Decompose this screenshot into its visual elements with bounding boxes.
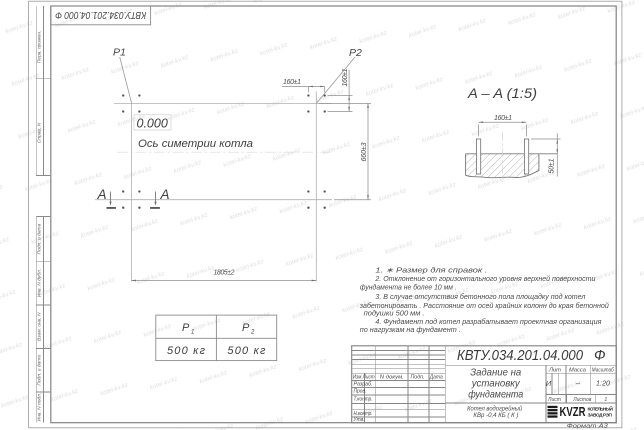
svg-text:P1: P1 xyxy=(113,47,126,59)
svg-text:Лист: Лист xyxy=(547,397,562,403)
svg-text:Изм.Лист: Изм.Лист xyxy=(353,375,375,381)
svg-text:фундамента не более 10 мм .: фундамента не более 10 мм . xyxy=(360,282,457,291)
svg-text:KVZR: KVZR xyxy=(560,405,586,419)
svg-text:Взам. инв. N: Взам. инв. N xyxy=(36,312,42,341)
svg-text:1: 1 xyxy=(604,397,607,403)
svg-text:по нагрузкам на фундамент .: по нагрузкам на фундамент . xyxy=(360,325,461,334)
svg-text:500 кг: 500 кг xyxy=(167,345,206,357)
svg-text:A: A xyxy=(97,187,107,202)
svg-text:Пров.: Пров. xyxy=(354,389,367,395)
svg-text:Масса: Масса xyxy=(569,368,586,374)
svg-text:фундамента: фундамента xyxy=(468,389,523,401)
svg-text:Инв. N дубл.: Инв. N дубл. xyxy=(36,269,42,297)
svg-text:Формат А3: Формат А3 xyxy=(567,423,609,429)
svg-text:Дата: Дата xyxy=(429,375,443,381)
svg-text:50±1: 50±1 xyxy=(549,158,556,173)
svg-text:Инв. N подл.: Инв. N подл. xyxy=(36,393,42,422)
svg-text:2: 2 xyxy=(250,330,255,336)
svg-text:1: 1 xyxy=(191,330,194,336)
svg-text:Лит: Лит xyxy=(548,368,562,374)
svg-text:P: P xyxy=(242,322,250,334)
svg-text:160±1: 160±1 xyxy=(494,115,512,122)
svg-text:P2: P2 xyxy=(349,47,362,59)
svg-text:–: – xyxy=(575,378,581,387)
svg-text:И: И xyxy=(546,379,552,388)
svg-text:КВТУ.034.201.04.000 Ф: КВТУ.034.201.04.000 Ф xyxy=(55,9,146,20)
svg-text:660±3: 660±3 xyxy=(361,142,368,161)
svg-text:Подп.: Подп. xyxy=(411,375,425,381)
svg-text:Утв.: Утв. xyxy=(353,417,365,423)
svg-text:Задание на: Задание на xyxy=(470,366,521,378)
svg-text:N докум.: N докум. xyxy=(380,375,404,381)
svg-text:Перв. примен.: Перв. примен. xyxy=(36,31,42,64)
svg-text:A – A (1:5): A – A (1:5) xyxy=(467,86,537,101)
svg-text:КВТУ.034.201.04.000: КВТУ.034.201.04.000 xyxy=(457,348,583,364)
svg-text:1. ∗ Размер для справок .: 1. ∗ Размер для справок . xyxy=(375,265,487,274)
svg-text:1:20: 1:20 xyxy=(596,379,611,388)
svg-text:A: A xyxy=(160,187,170,202)
svg-text:Справ. N: Справ. N xyxy=(36,122,42,143)
svg-text:160±1: 160±1 xyxy=(283,79,301,86)
svg-text:500 кг: 500 кг xyxy=(227,345,266,357)
svg-text:подушки 500 мм .: подушки 500 мм . xyxy=(364,309,425,318)
svg-text:Подп. и дата: Подп. и дата xyxy=(36,223,42,254)
svg-text:160±1: 160±1 xyxy=(342,68,349,86)
svg-text:Листов: Листов xyxy=(572,397,591,403)
svg-text:1805±2: 1805±2 xyxy=(214,269,235,276)
svg-text:КВр -0,4 КБ ( К ): КВр -0,4 КБ ( К ) xyxy=(473,412,518,419)
svg-text:Т.контр.: Т.контр. xyxy=(354,396,373,402)
svg-text:Масштаб: Масштаб xyxy=(592,368,615,374)
svg-text:ЗАВОД РЭП: ЗАВОД РЭП xyxy=(588,412,613,418)
svg-text:Ф: Ф xyxy=(594,348,606,364)
svg-text:0.000: 0.000 xyxy=(137,117,168,131)
svg-text:Н.контр.: Н.контр. xyxy=(354,411,373,417)
svg-text:Разраб.: Разраб. xyxy=(354,382,373,388)
svg-text:P: P xyxy=(182,322,190,334)
svg-text:Ось симетрии котла: Ось симетрии котла xyxy=(138,138,253,150)
svg-text:Подп. и дата: Подп. и дата xyxy=(36,355,42,386)
